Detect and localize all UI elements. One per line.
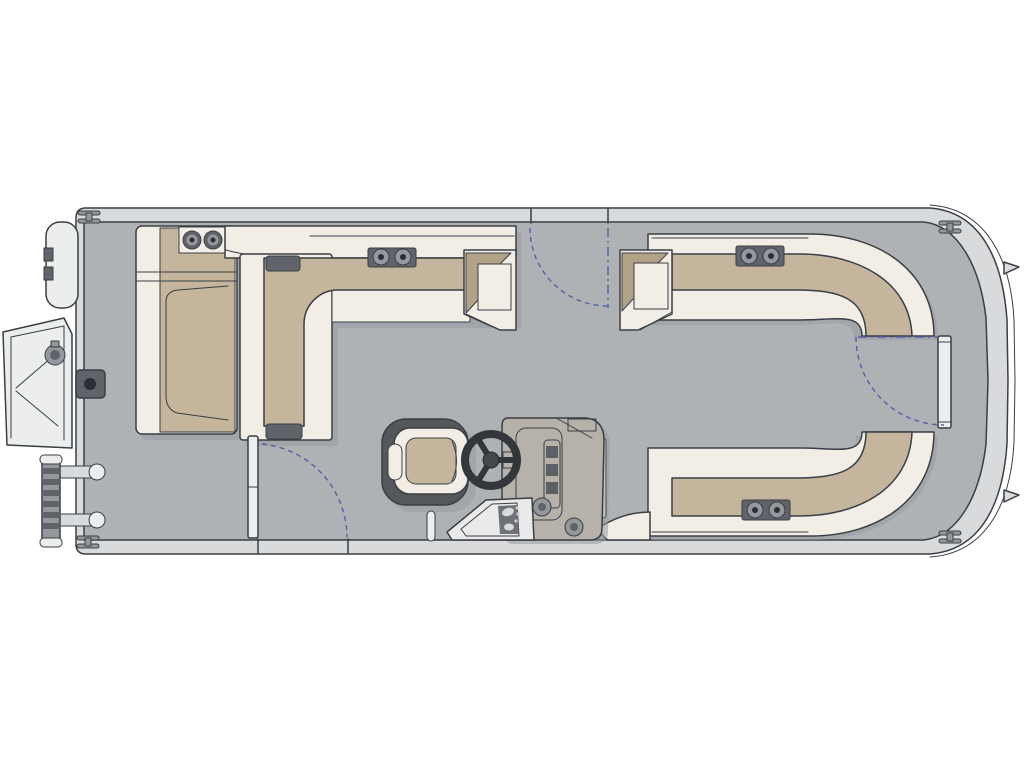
table-post — [427, 511, 435, 541]
floorplan-canvas — [0, 0, 1024, 768]
port-couch-armrest — [464, 250, 516, 330]
stern-cap — [46, 222, 78, 308]
bow-hinge-tab-top — [1004, 262, 1019, 274]
stern-boarding-gate-open — [3, 318, 72, 448]
chair-side-bolster — [388, 444, 402, 480]
stern-transducer — [44, 248, 53, 261]
bow-gate — [938, 336, 951, 428]
bow-couch-armrest — [620, 250, 672, 330]
deck-fitting-socket — [84, 378, 96, 390]
pontoon-floorplan-drawing — [0, 0, 1024, 768]
bow-hinge-tab-bottom — [1004, 490, 1019, 502]
stern-transducer-2 — [44, 267, 53, 280]
armrest-cap-bottom — [266, 424, 302, 439]
port-gate-open-panel — [248, 436, 258, 538]
stern-chaise-lounge — [136, 226, 237, 434]
armrest-cap-top — [266, 256, 300, 271]
